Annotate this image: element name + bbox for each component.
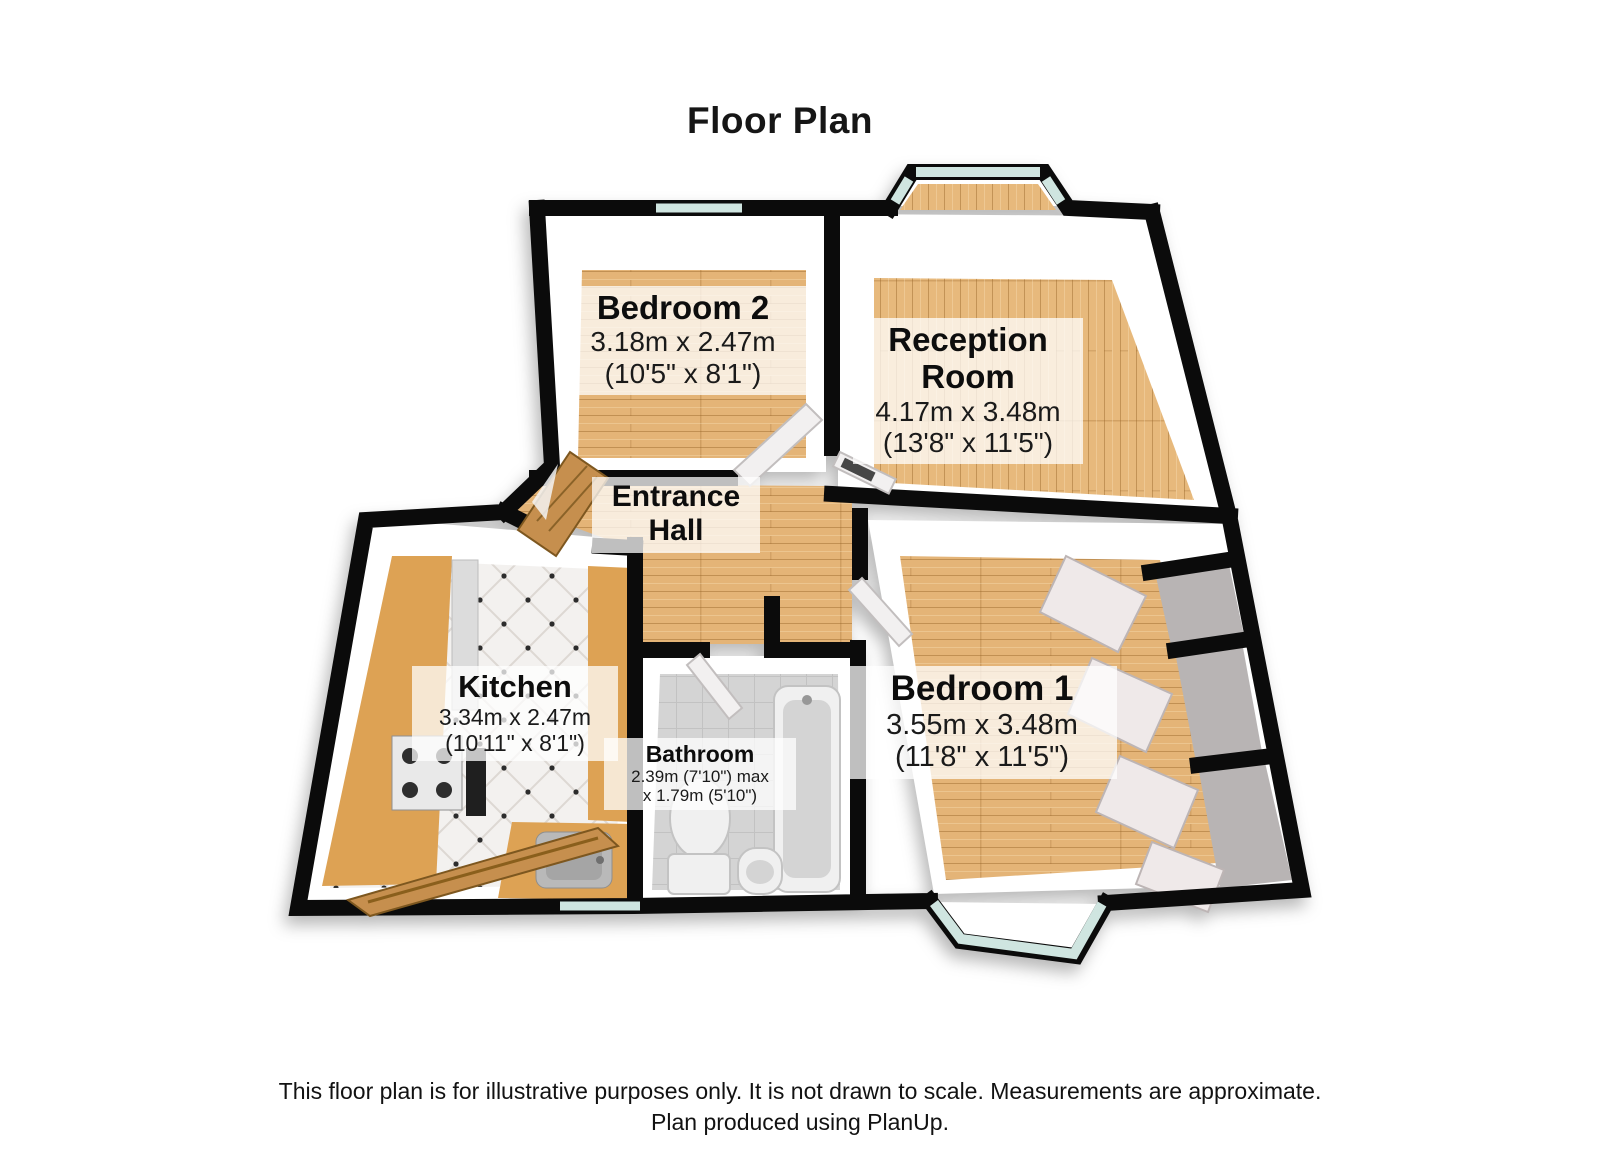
disclaimer-line1: This floor plan is for illustrative purp…	[0, 1076, 1600, 1107]
bathroom-label: Bathroom 2.39m (7'10") max x 1.79m (5'10…	[604, 738, 796, 810]
reception-dim-imperial: (13'8" x 11'5")	[863, 427, 1073, 459]
entrance-hall-name: Entrance Hall	[602, 480, 750, 548]
reception-dim-metric: 4.17m x 3.48m	[863, 396, 1073, 428]
floor-plan-page: Floor Plan	[0, 0, 1600, 1163]
bedroom2-name: Bedroom 2	[567, 289, 799, 326]
reception-bay-floor	[900, 184, 1056, 210]
bedroom1-dim-metric: 3.55m x 3.48m	[857, 709, 1107, 742]
disclaimer: This floor plan is for illustrative purp…	[0, 1076, 1600, 1138]
bathroom-dim-line1: 2.39m (7'10") max	[614, 767, 786, 786]
reception-label: Reception Room 4.17m x 3.48m (13'8" x 11…	[853, 318, 1083, 464]
disclaimer-line2: Plan produced using PlanUp.	[0, 1107, 1600, 1138]
floor-plan-drawing	[0, 0, 1600, 1163]
bedroom2-label: Bedroom 2 3.18m x 2.47m (10'5" x 8'1")	[557, 286, 809, 395]
bedroom1-dim-imperial: (11'8" x 11'5")	[857, 741, 1107, 774]
bedroom2-dim-imperial: (10'5" x 8'1")	[567, 358, 799, 390]
kitchen-name: Kitchen	[422, 669, 608, 704]
kitchen-label: Kitchen 3.34m x 2.47m (10'11" x 8'1")	[412, 666, 618, 761]
reception-name: Reception Room	[863, 321, 1073, 396]
entrance-hall-label: Entrance Hall	[592, 477, 760, 553]
bathroom-dim-line2: x 1.79m (5'10")	[614, 786, 786, 805]
kitchen-dim-imperial: (10'11" x 8'1")	[422, 730, 608, 756]
bathroom-name: Bathroom	[614, 741, 786, 767]
toilet-cistern	[668, 854, 730, 894]
bedroom1-name: Bedroom 1	[857, 669, 1107, 709]
bedroom1-label: Bedroom 1 3.55m x 3.48m (11'8" x 11'5")	[847, 666, 1117, 779]
kitchen-dim-metric: 3.34m x 2.47m	[422, 704, 608, 730]
bedroom2-dim-metric: 3.18m x 2.47m	[567, 326, 799, 358]
